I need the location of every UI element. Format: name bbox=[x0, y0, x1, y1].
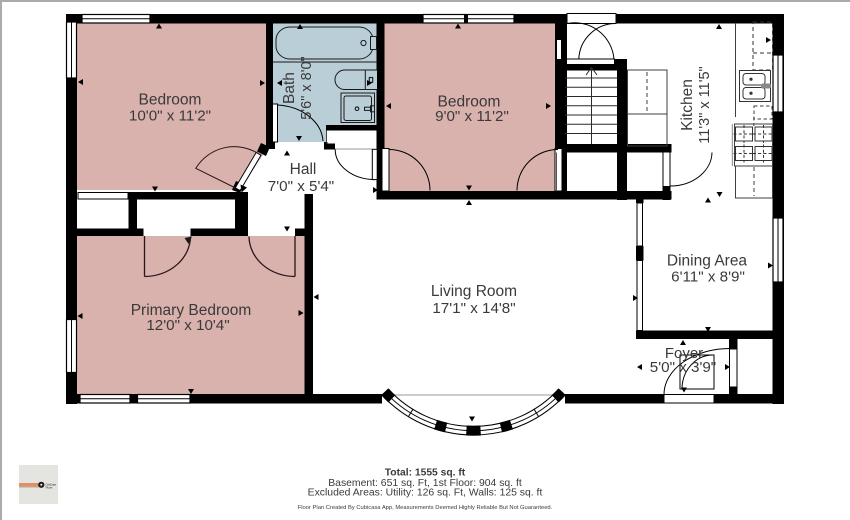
svg-text:10'0" x 11'2": 10'0" x 11'2" bbox=[129, 108, 211, 125]
svg-text:5'0" x 3'9": 5'0" x 3'9" bbox=[650, 359, 716, 376]
svg-text:5'6" x 8'0": 5'6" x 8'0" bbox=[299, 56, 315, 119]
svg-text:6'11" x 8'9": 6'11" x 8'9" bbox=[671, 269, 745, 286]
svg-text:9'0" x 11'2": 9'0" x 11'2" bbox=[435, 108, 509, 125]
svg-text:Bedroom: Bedroom bbox=[139, 92, 202, 109]
svg-text:Excluded Areas: Utility: 126 s: Excluded Areas: Utility: 126 sq. Ft, Wal… bbox=[308, 487, 543, 498]
svg-text:17'1" x 14'8": 17'1" x 14'8" bbox=[432, 300, 515, 317]
svg-text:Hall: Hall bbox=[290, 161, 317, 178]
svg-text:Floors: Floors bbox=[46, 486, 54, 490]
svg-text:Bath: Bath bbox=[281, 72, 298, 104]
svg-text:Dining Area: Dining Area bbox=[667, 253, 748, 270]
svg-text:Total: 1555 sq. ft: Total: 1555 sq. ft bbox=[385, 468, 466, 479]
svg-text:Living Room: Living Room bbox=[431, 283, 517, 300]
svg-text:12'0" x 10'4": 12'0" x 10'4" bbox=[146, 317, 229, 334]
svg-text:7'0" x 5'4": 7'0" x 5'4" bbox=[268, 178, 334, 195]
svg-text:Floor Plan Created By Cubicasa: Floor Plan Created By Cubicasa App, Meas… bbox=[298, 505, 553, 511]
svg-text:Kitchen: Kitchen bbox=[679, 79, 696, 131]
svg-text:11'3" x 11'5": 11'3" x 11'5" bbox=[697, 66, 713, 143]
